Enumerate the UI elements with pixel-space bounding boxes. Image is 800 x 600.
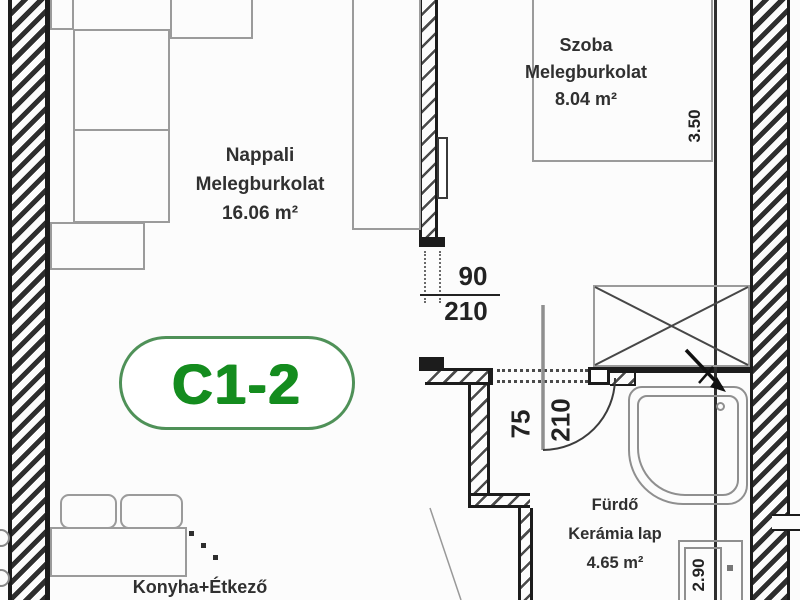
- furdo-floor: Kerámia lap: [545, 520, 685, 549]
- left-exterior-wall: [8, 0, 50, 600]
- sofa-cushion-right: [120, 494, 183, 529]
- szoba-length-dimension: 3.50: [685, 109, 705, 142]
- nappali-cabinet-right: [352, 0, 421, 230]
- room-label-furdo: Fürdő Kerámia lap 4.65 m²: [545, 491, 685, 578]
- sofa-seat: [50, 527, 187, 577]
- furdo-top-wall: [425, 368, 493, 385]
- wardrobe-crossed-box: [593, 285, 750, 367]
- szoba-name: Szoba: [505, 32, 667, 59]
- szoba-door-width: 90: [420, 261, 500, 292]
- room-label-szoba: Szoba Melegburkolat 8.04 m²: [505, 32, 667, 113]
- unit-badge: C1-2: [119, 336, 355, 430]
- konyha-leader-dot-2: [201, 543, 206, 548]
- szoba-door-height: 210: [420, 296, 500, 327]
- nappali-floor: Melegburkolat: [160, 170, 360, 199]
- nappali-name: Nappali: [160, 141, 360, 170]
- furdo-left-wall: [468, 385, 490, 493]
- right-exterior-wall: [750, 0, 790, 600]
- bathtub-drain: [716, 402, 725, 411]
- nappali-szoba-wall-cap: [419, 237, 445, 247]
- furdo-door-right-jamb: [588, 367, 610, 385]
- sofa-cushion-left: [60, 494, 117, 529]
- furdo-door-height: 210: [546, 398, 577, 441]
- furdo-door-width: 75: [506, 410, 537, 439]
- washbasin-dot: [727, 565, 733, 571]
- szoba-floor: Melegburkolat: [505, 59, 667, 86]
- room-label-nappali: Nappali Melegburkolat 16.06 m²: [160, 141, 360, 228]
- furdo-lower-wall: [518, 508, 533, 600]
- furdo-door-opening-dotted-bottom: [497, 380, 588, 383]
- furdo-door-opening-dotted-top: [497, 369, 588, 372]
- nappali-cabinet-top: [50, 0, 74, 30]
- nappali-cabinet-left: [50, 222, 145, 270]
- furdo-length-dimension: 2.90: [689, 558, 709, 591]
- floor-plan: Nappali Melegburkolat 16.06 m² Szoba Mel…: [0, 0, 800, 600]
- szoba-furdo-wall-hatch: [610, 373, 636, 386]
- konyha-name: Konyha+Étkező: [133, 577, 268, 597]
- konyha-leader-dot-1: [189, 531, 194, 536]
- wardrobe-divider: [75, 129, 168, 131]
- nappali-area: 16.06 m²: [160, 199, 360, 228]
- furdo-name: Fürdő: [545, 491, 685, 520]
- szoba-area: 8.04 m²: [505, 86, 667, 113]
- furdo-area: 4.65 m²: [545, 549, 685, 578]
- bathtub-inner: [637, 395, 739, 496]
- szoba-door-leaf: [437, 137, 448, 199]
- konyha-leader-line: [430, 508, 461, 600]
- right-wall-notch: [772, 514, 800, 531]
- szoba-door-dimension: 90 210: [420, 261, 500, 327]
- nappali-shelf: [170, 0, 253, 39]
- room-label-konyha: Konyha+Étkező: [100, 577, 300, 598]
- nappali-wardrobe: [73, 29, 170, 223]
- furdo-jog-wall: [468, 493, 530, 508]
- konyha-leader-dot-3: [213, 555, 218, 560]
- nappali-szoba-wall: [419, 0, 438, 238]
- unit-label: C1-2: [172, 351, 301, 416]
